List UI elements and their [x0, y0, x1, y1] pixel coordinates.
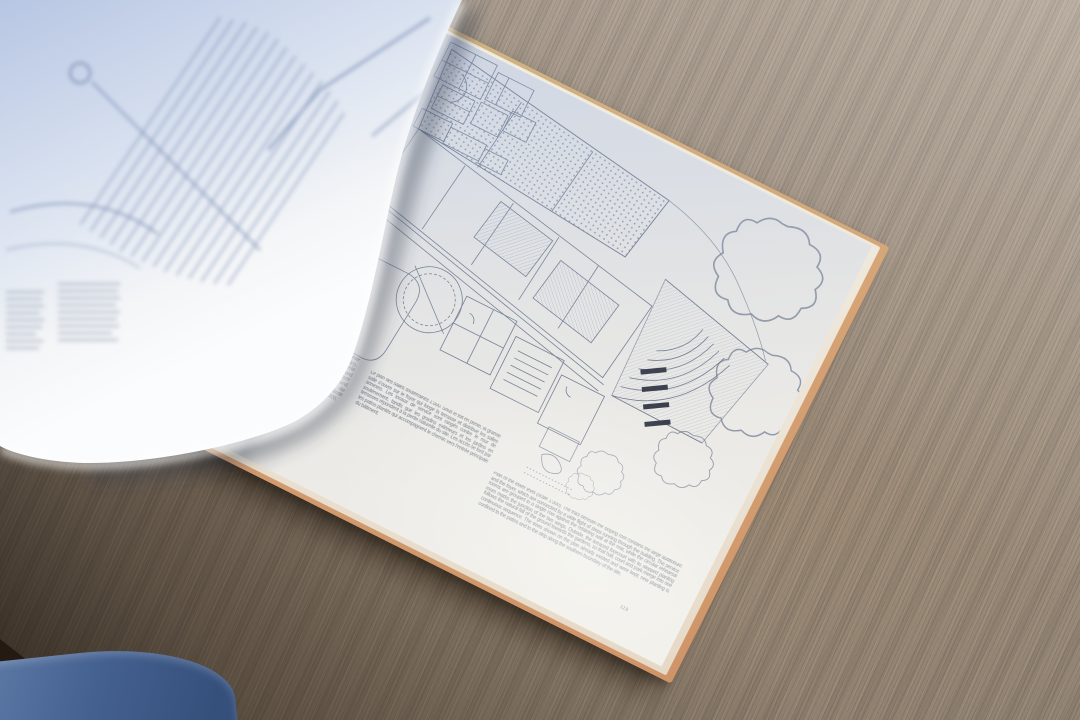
- photo-scene: Das grosse Auditorium liegt unter dem ge…: [0, 0, 1080, 720]
- turning-page: [0, 0, 1080, 720]
